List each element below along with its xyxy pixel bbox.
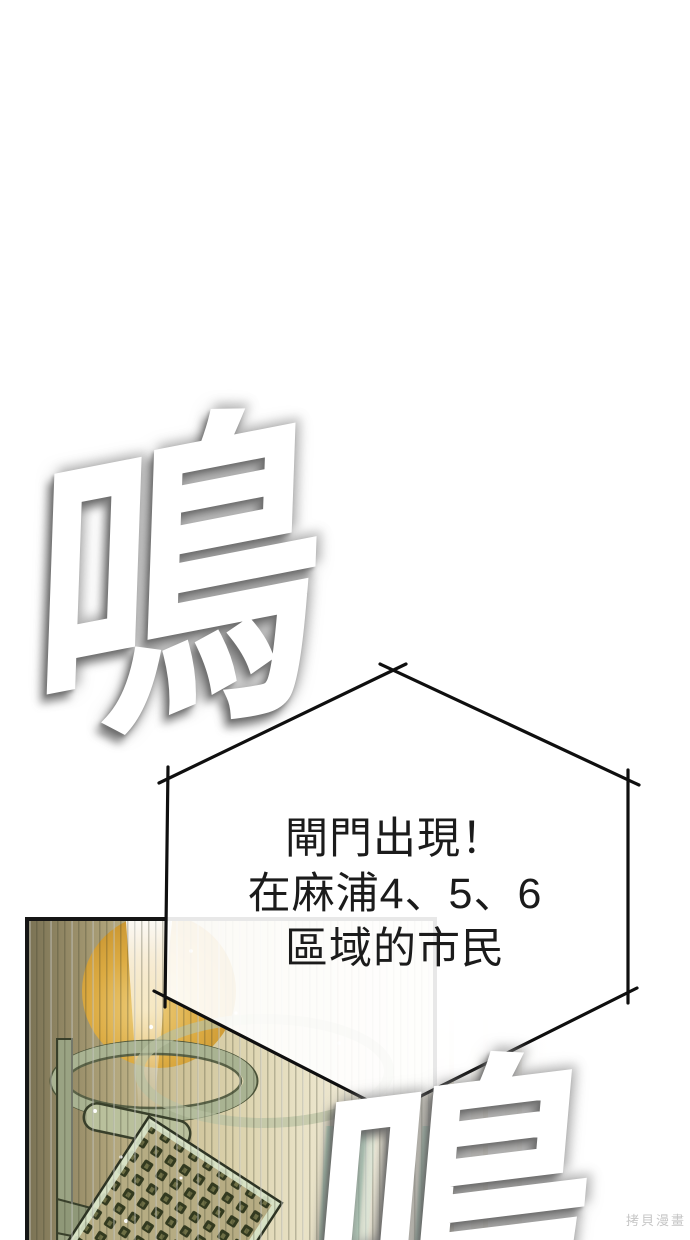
sfx-secondary-glyph: 鳴 (293, 1023, 606, 1240)
sfx-text-primary: 鳴 (27, 391, 328, 780)
bubble-line-1: 閘門出現！ (185, 812, 605, 867)
sfx-text-secondary: 鳴 (295, 1042, 605, 1240)
watermark-text: 拷貝漫畫 (626, 1210, 686, 1229)
sfx-primary-glyph: 鳴 (26, 371, 329, 800)
comic-page: 鳴 (0, 0, 690, 1240)
bubble-line-2: 在麻浦4、5、6 (185, 867, 605, 922)
bubble-line-3: 區域的市民 (185, 922, 605, 977)
speech-bubble-text: 閘門出現！ 在麻浦4、5、6 區域的市民 (185, 812, 605, 977)
